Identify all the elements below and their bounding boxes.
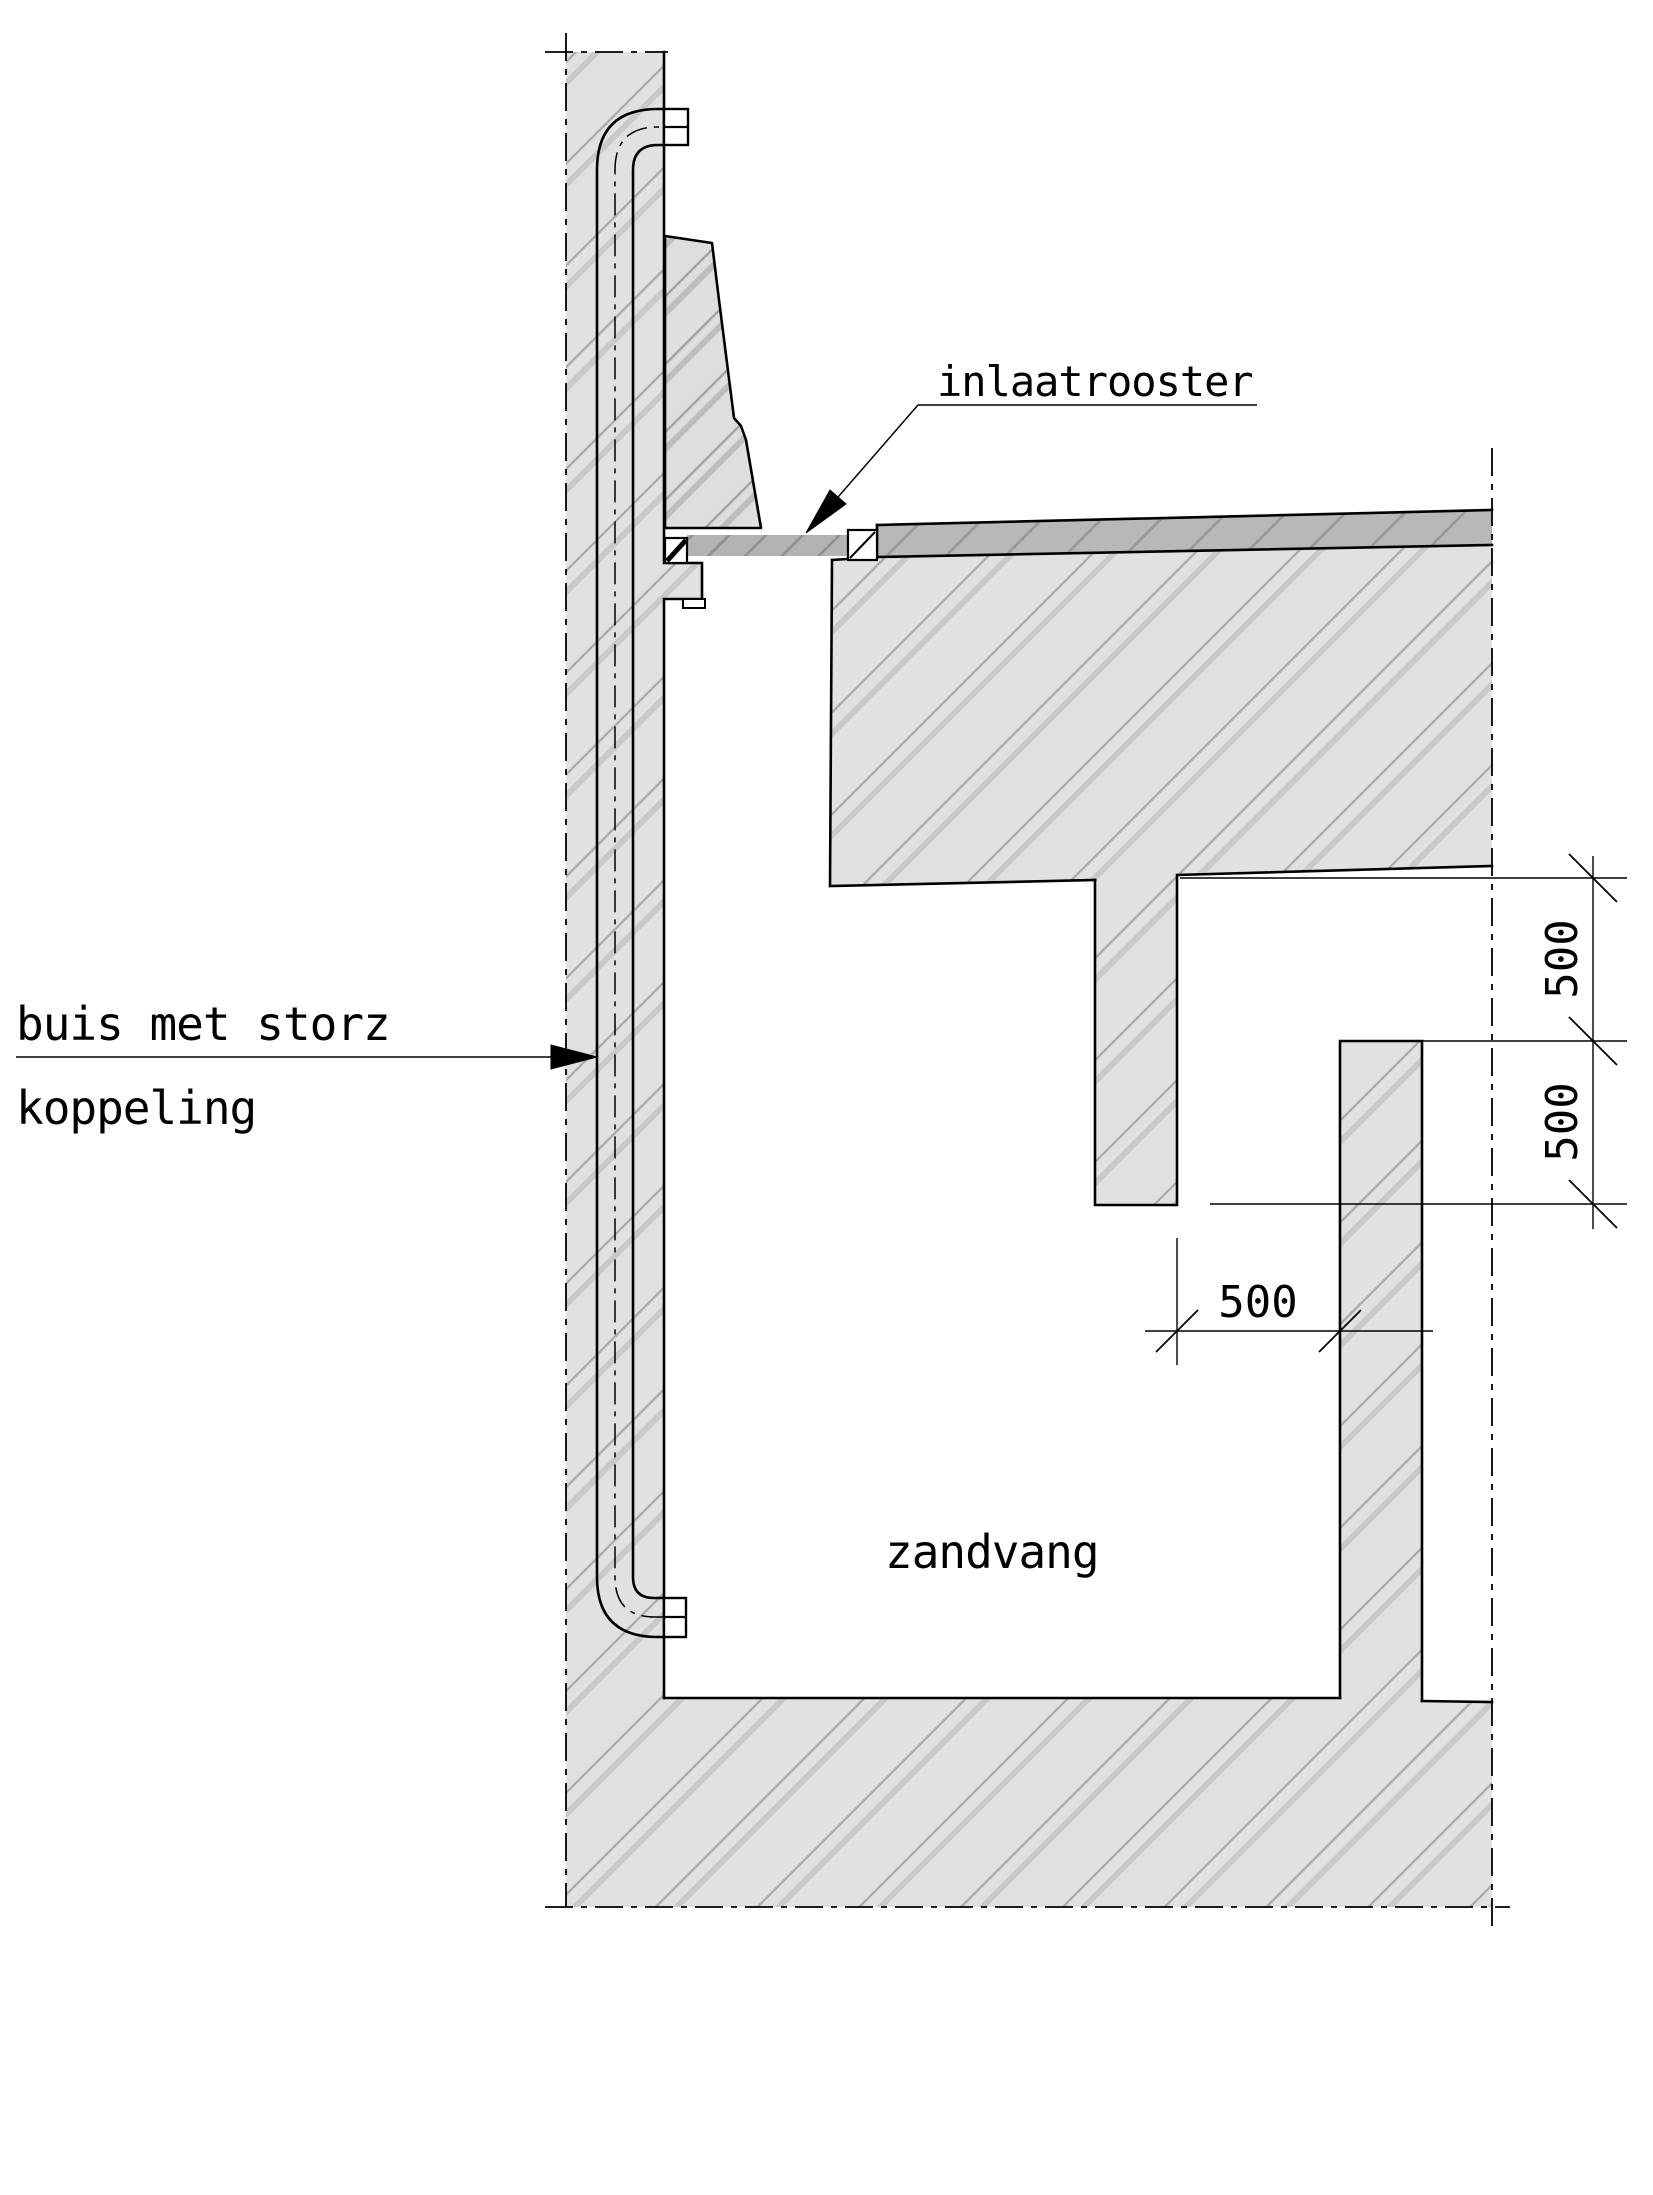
grate-seat-lip xyxy=(683,599,705,608)
label-sand-trap: zandvang xyxy=(885,1525,1099,1579)
kerb-fill xyxy=(665,236,761,528)
floor-top-edge-right xyxy=(1422,1701,1492,1702)
drawing-canvas: 500 500 500 inlaatrooster buis met storz… xyxy=(0,0,1653,2195)
label-pipe-line1: buis met storz xyxy=(16,997,390,1051)
storz-coupling-bottom xyxy=(664,1598,686,1637)
grate-left-bracket xyxy=(665,538,687,563)
storz-coupling-top xyxy=(664,109,688,145)
leader-arrowhead-inlet xyxy=(806,490,846,533)
inlet-grate xyxy=(687,535,848,556)
dim-value-bottom-gap: 500 xyxy=(1218,1277,1297,1328)
cross-section-drawing: 500 500 500 inlaatrooster buis met storz… xyxy=(0,0,1653,2195)
dim-value-right-lower: 500 xyxy=(1537,1082,1588,1161)
leader-inlet-grate xyxy=(812,405,1257,527)
label-pipe-line2: koppeling xyxy=(16,1081,256,1135)
label-inlet-grate: inlaatrooster xyxy=(806,357,1257,533)
dim-value-right-upper: 500 xyxy=(1537,919,1588,998)
label-pipe-coupling: buis met storz koppeling xyxy=(16,997,597,1135)
grate-right-support xyxy=(848,530,877,560)
label-inlet-grate-text: inlaatrooster xyxy=(937,357,1253,406)
